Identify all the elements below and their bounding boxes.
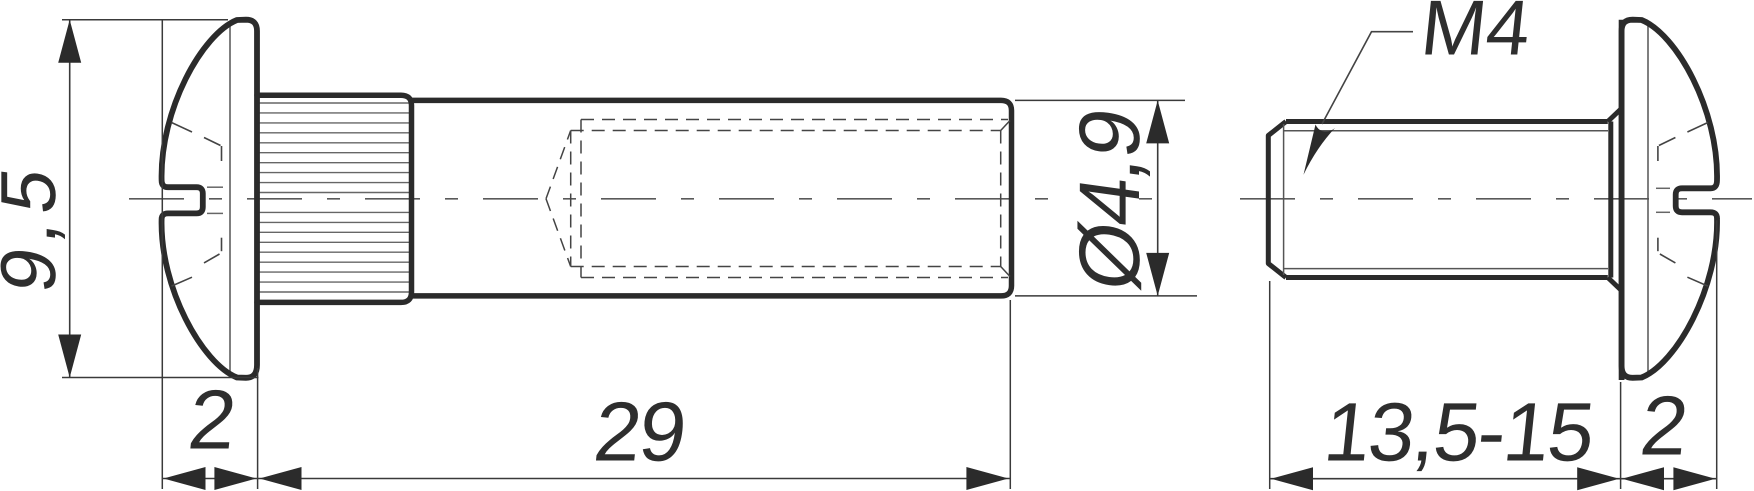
svg-text:13,5-15: 13,5-15	[1320, 386, 1597, 479]
svg-text:Ø4,9: Ø4,9	[1062, 104, 1158, 296]
svg-text:2: 2	[184, 373, 241, 467]
svg-text:2: 2	[1636, 379, 1693, 473]
svg-text:9,5: 9,5	[0, 156, 72, 298]
svg-text:29: 29	[590, 385, 689, 479]
svg-text:M4: M4	[1417, 0, 1535, 71]
